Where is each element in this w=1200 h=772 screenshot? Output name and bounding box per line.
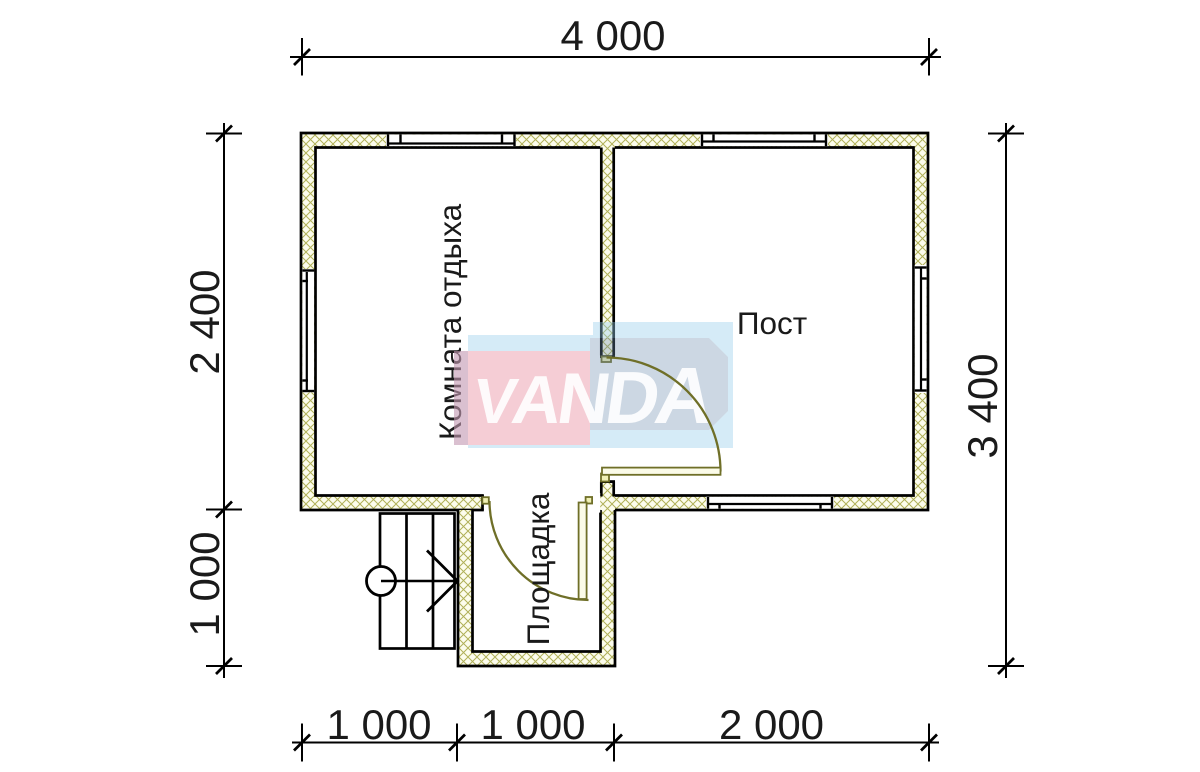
svg-text:2 400: 2 400 bbox=[181, 269, 228, 374]
svg-text:1 000: 1 000 bbox=[326, 701, 431, 748]
svg-text:1 000: 1 000 bbox=[480, 701, 585, 748]
svg-text:2 000: 2 000 bbox=[719, 701, 824, 748]
svg-text:3 400: 3 400 bbox=[959, 353, 1006, 458]
svg-text:VANDA: VANDA bbox=[468, 351, 718, 441]
svg-text:Пост: Пост bbox=[737, 305, 807, 341]
svg-text:1 000: 1 000 bbox=[181, 531, 228, 636]
svg-text:Площадка: Площадка bbox=[520, 492, 556, 645]
svg-text:4 000: 4 000 bbox=[560, 12, 665, 59]
